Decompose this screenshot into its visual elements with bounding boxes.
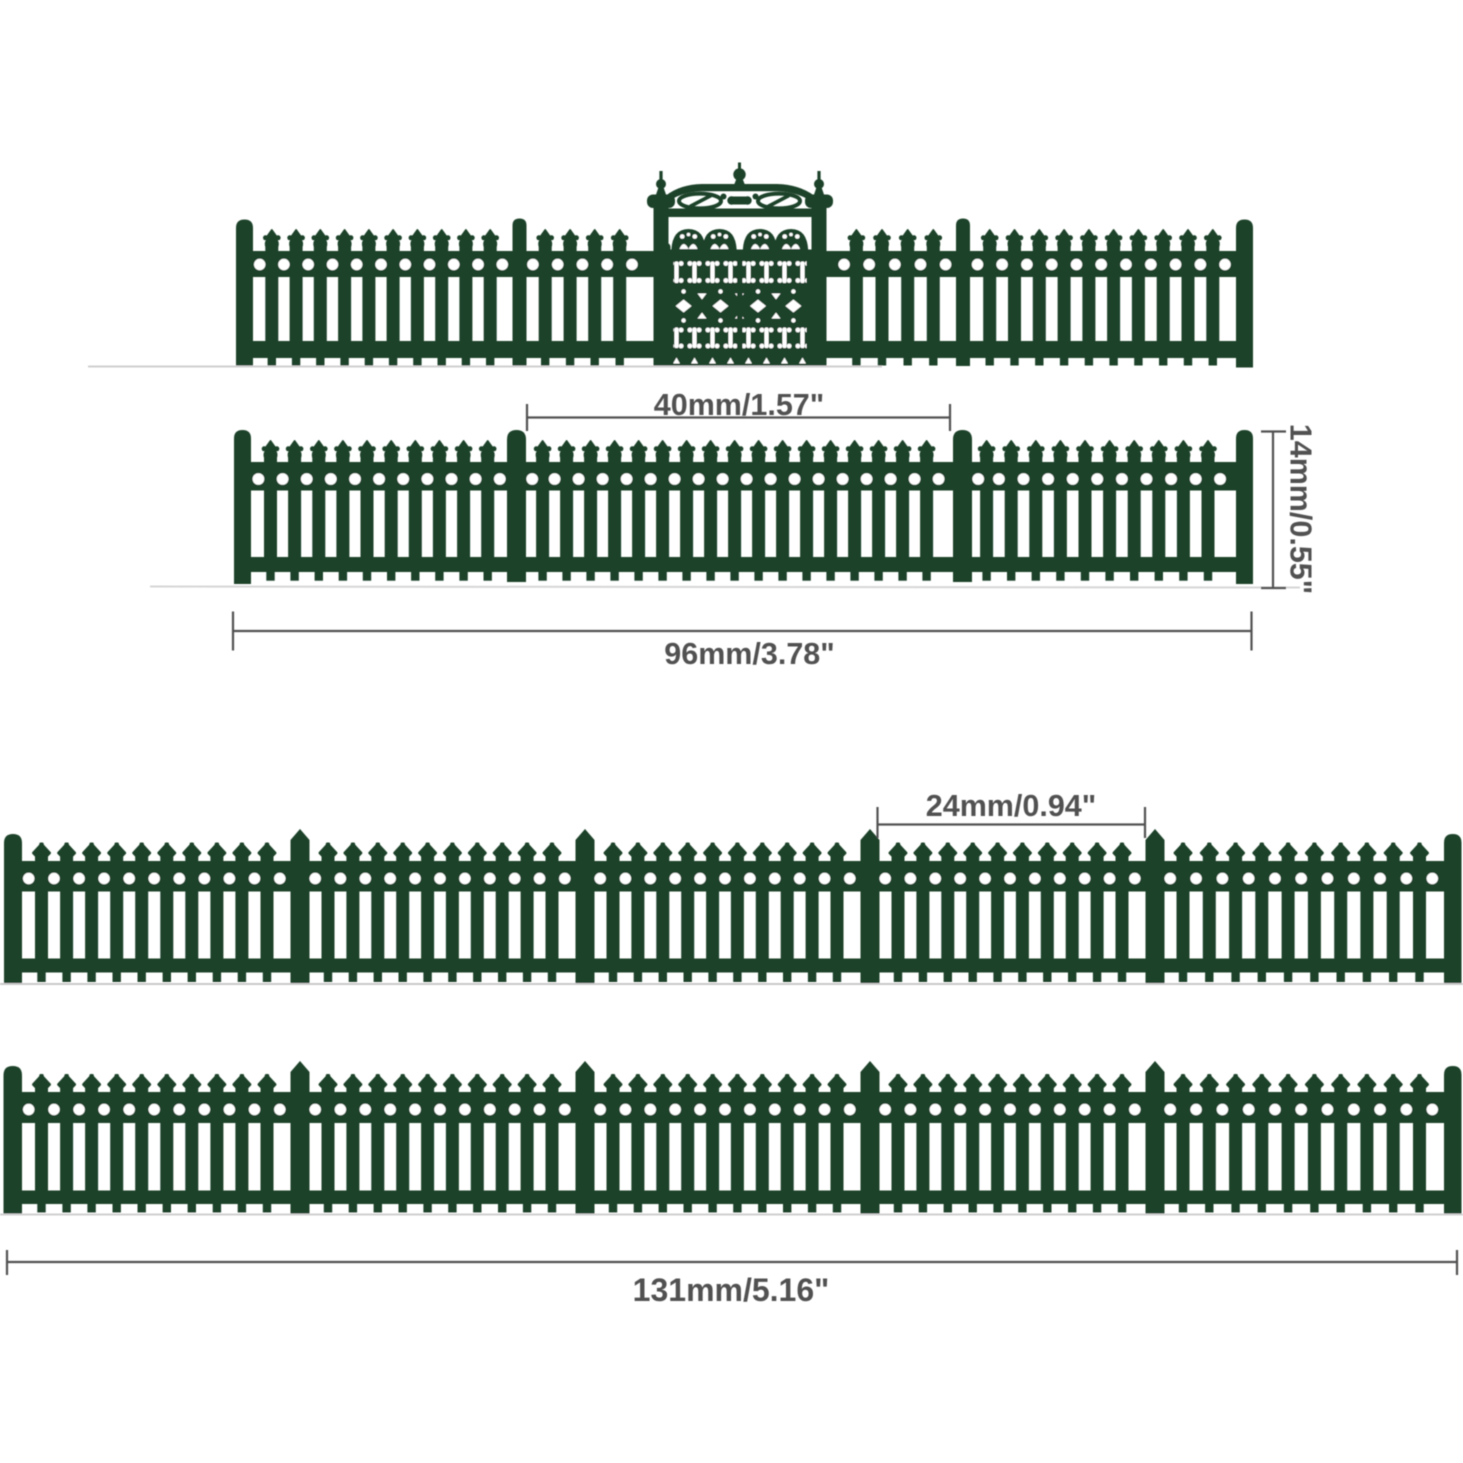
svg-text:14mm/0.55": 14mm/0.55" <box>1284 424 1318 594</box>
svg-text:131mm/5.16": 131mm/5.16" <box>633 1272 830 1308</box>
svg-text:96mm/3.78": 96mm/3.78" <box>664 637 834 671</box>
svg-text:24mm/0.94": 24mm/0.94" <box>926 789 1096 823</box>
svg-text:40mm/1.57": 40mm/1.57" <box>654 388 824 422</box>
